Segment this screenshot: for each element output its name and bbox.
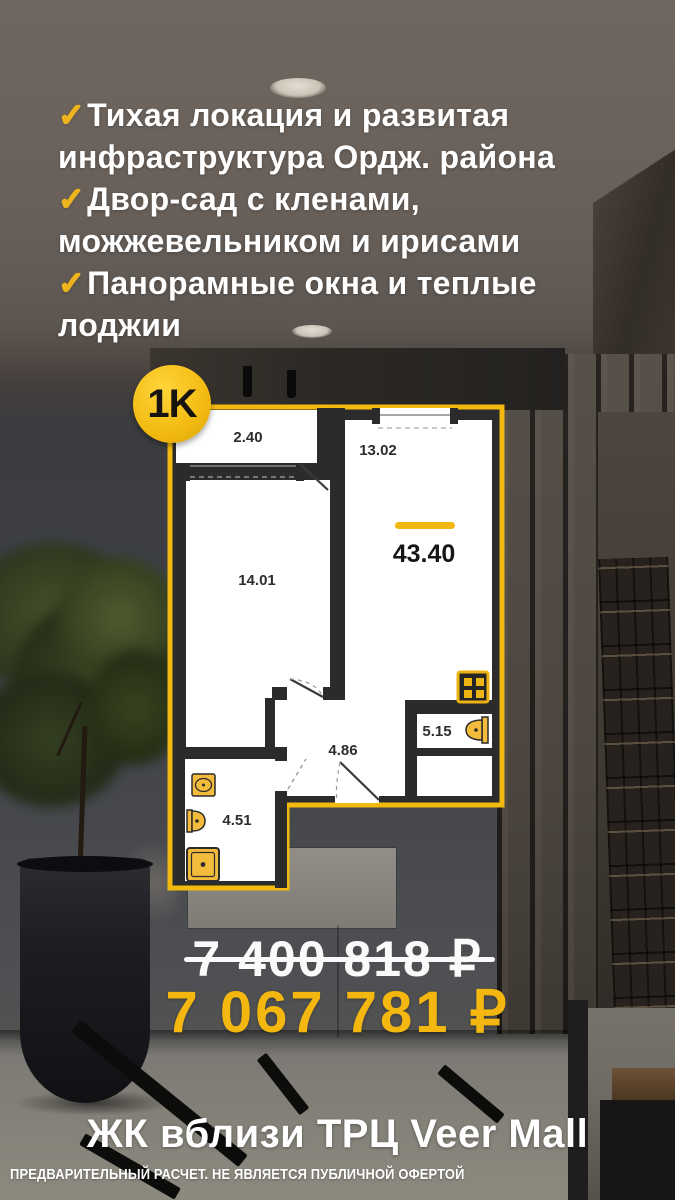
stove-icon: [458, 672, 488, 702]
feature-line: ✓Панорамные окна и теплые: [58, 262, 658, 304]
feature-line: инфраструктура Ордж. района: [58, 136, 658, 178]
feature-line: можжевельником и ирисами: [58, 220, 658, 262]
disclaimer-text: ПРЕДВАРИТЕЛЬНЫЙ РАСЧЕТ. НЕ ЯВЛЯЕТСЯ ПУБЛ…: [10, 1166, 465, 1183]
feature-line: ✓Тихая локация и развитая: [58, 94, 658, 136]
feature-text: лоджии: [58, 307, 181, 343]
shower-icon: [187, 848, 219, 881]
check-icon: ✓: [58, 181, 85, 217]
total-area-label: 43.40: [393, 540, 456, 568]
wooden-bench: [612, 1068, 675, 1102]
room-area-room: 14.01: [238, 572, 276, 589]
plan-type-label: 1K: [147, 382, 196, 427]
feature-text: Панорамные окна и теплые: [87, 265, 537, 301]
feature-text: Двор-сад с кленами,: [87, 181, 420, 217]
pendant-light: [287, 370, 296, 398]
floor-plan: 2.40 13.02 14.01 43.40 4.86 5.15 4.51: [160, 398, 512, 900]
feature-line: ✓Двор-сад с кленами,: [58, 178, 658, 220]
room-area-bathroom: 5.15: [422, 723, 451, 740]
features-list: ✓Тихая локация и развитая инфраструктура…: [58, 94, 658, 346]
toilet-icon: [187, 810, 205, 832]
plan-type-badge: 1K: [133, 365, 211, 443]
check-icon: ✓: [58, 97, 85, 133]
disclaimer: ПРЕДВАРИТЕЛЬНЫЙ РАСЧЕТ. НЕ ЯВЛЯЕТСЯ ПУБЛ…: [10, 1166, 539, 1183]
feature-text: Тихая локация и развитая: [87, 97, 509, 133]
total-area-underline: [395, 522, 455, 529]
feature-text: можжевельником и ирисами: [58, 223, 520, 259]
old-price: 7 400 818 ₽: [0, 932, 675, 986]
real-estate-ad: ✓Тихая локация и развитая инфраструктура…: [0, 0, 675, 1200]
room-area-loggia: 2.40: [233, 429, 262, 446]
room-area-kitchen: 13.02: [359, 442, 397, 459]
old-price-value: 7 400 818 ₽: [192, 932, 482, 986]
room-area-bathroom-2: 4.51: [222, 812, 251, 829]
feature-line: лоджии: [58, 304, 658, 346]
new-price: 7 067 781 ₽: [0, 982, 675, 1044]
pendant-light: [243, 366, 252, 397]
sink-icon: [192, 774, 215, 796]
feature-text: инфраструктура Ордж. района: [58, 139, 555, 175]
room-area-hallway: 4.86: [328, 742, 357, 759]
complex-title: ЖК вблизи ТРЦ Veer Mall: [0, 1112, 675, 1157]
check-icon: ✓: [58, 265, 85, 301]
